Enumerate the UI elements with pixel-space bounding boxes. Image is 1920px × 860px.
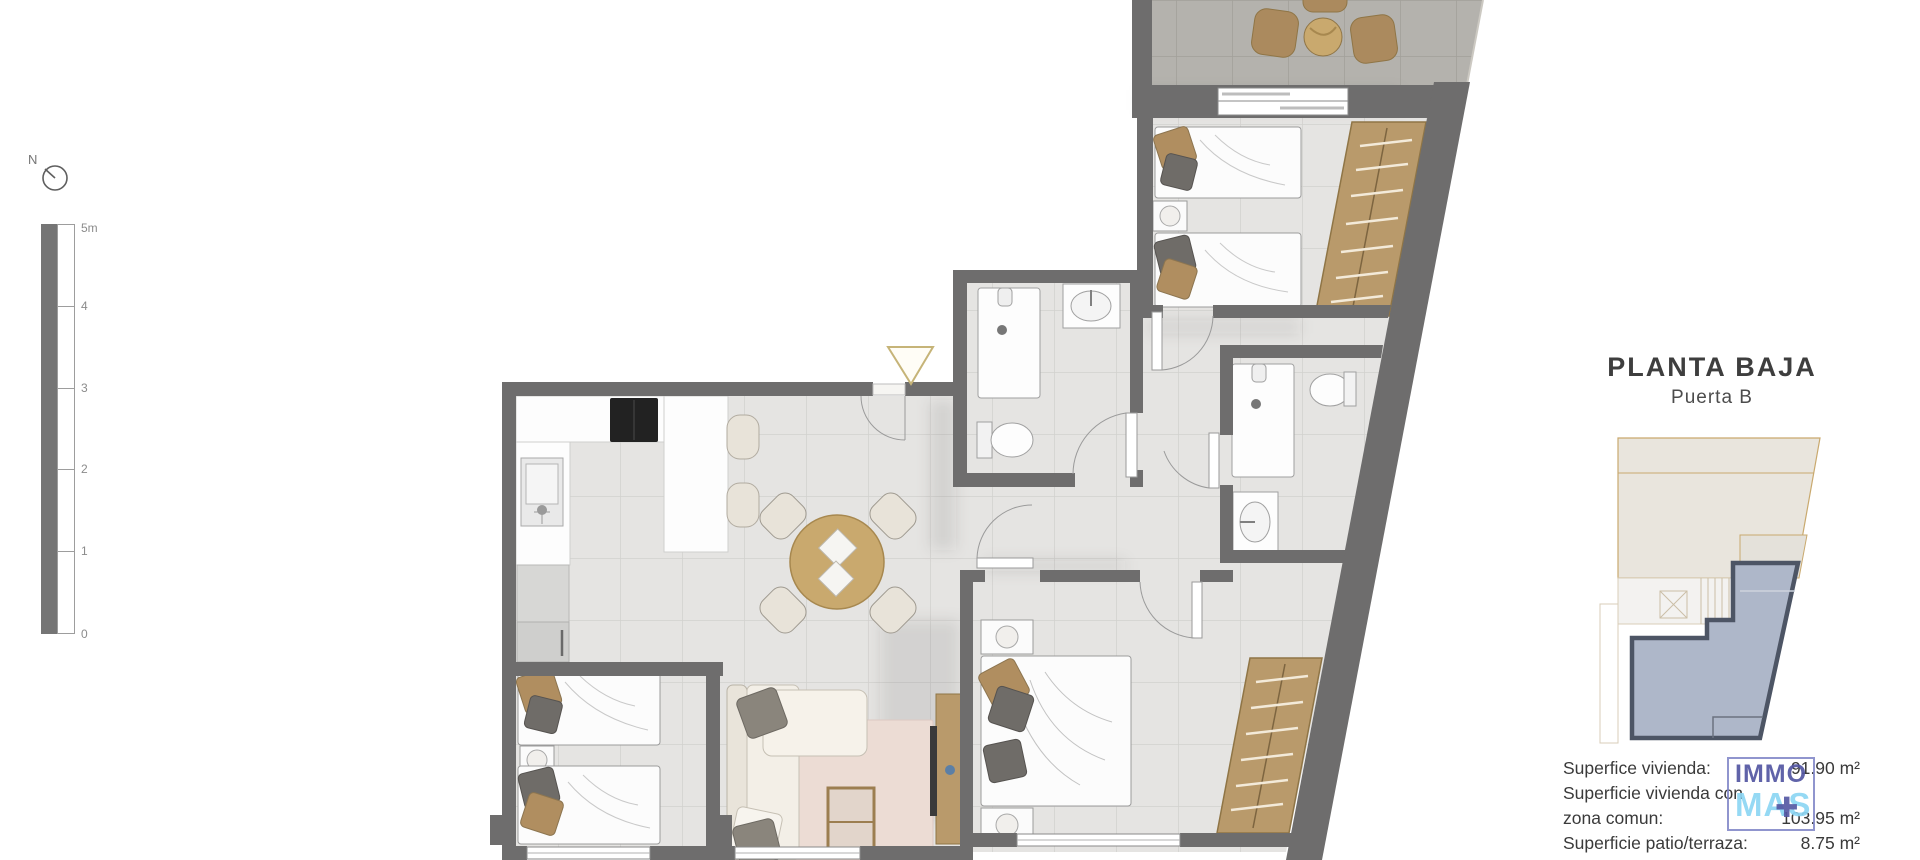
scale-label-4: 4	[81, 299, 88, 313]
kitchen-island	[664, 396, 728, 552]
compass: N	[24, 150, 80, 202]
scale-label-5m: 5m	[81, 221, 98, 235]
area-label: Superficie vivienda con	[1563, 781, 1743, 806]
compass-north-label: N	[28, 152, 37, 167]
area-row: Superfice vivienda: 91.90 m²	[1563, 756, 1860, 781]
area-value: 8.75 m²	[1801, 831, 1860, 856]
door-leaf	[1192, 582, 1202, 638]
door-leaf	[1126, 413, 1137, 477]
scale-bar-fill	[41, 224, 57, 634]
plan-subtitle: Puerta B	[1562, 387, 1862, 409]
scale-label-3: 3	[81, 381, 88, 395]
door-leaf	[977, 558, 1033, 568]
door-leaf	[1209, 433, 1219, 488]
scale-bar: 5m 4 3 2 1 0	[41, 224, 101, 634]
logo-plus-icon: ✚	[1775, 791, 1798, 824]
immo-mas-logo: IMMO MAS ✚	[1727, 757, 1815, 831]
area-row: zona comun: 103.95 m²	[1563, 806, 1860, 831]
area-row: Superficie patio/terraza: 8.75 m²	[1563, 831, 1860, 856]
scale-label-0: 0	[81, 627, 88, 641]
key-plan	[1595, 428, 1835, 753]
toilet	[977, 422, 992, 458]
area-label: zona comun:	[1563, 806, 1663, 831]
scale-bar-track	[57, 224, 75, 634]
area-label: Superfice vivienda:	[1563, 756, 1711, 781]
scale-label-2: 2	[81, 462, 88, 476]
floorplan-page: N 5m 4 3 2 1 0 PLANTA BAJA Puerta B	[0, 0, 1920, 860]
tv-icon	[930, 726, 937, 816]
logo-word-immo: IMMO	[1735, 761, 1813, 787]
plan-title: PLANTA BAJA	[1562, 352, 1862, 383]
stool	[727, 415, 759, 459]
kitchen-cabinet	[517, 565, 569, 622]
stool	[727, 483, 759, 527]
area-label: Superficie patio/terraza:	[1563, 831, 1748, 856]
entry-marker-icon	[888, 347, 933, 384]
area-table: Superfice vivienda: 91.90 m² Superficie …	[1563, 756, 1860, 856]
door-leaf	[1152, 312, 1162, 370]
entry-door	[873, 384, 905, 395]
scale-label-1: 1	[81, 544, 88, 558]
logo-word-mas: MAS	[1735, 789, 1813, 821]
area-row: Superficie vivienda con	[1563, 781, 1860, 806]
